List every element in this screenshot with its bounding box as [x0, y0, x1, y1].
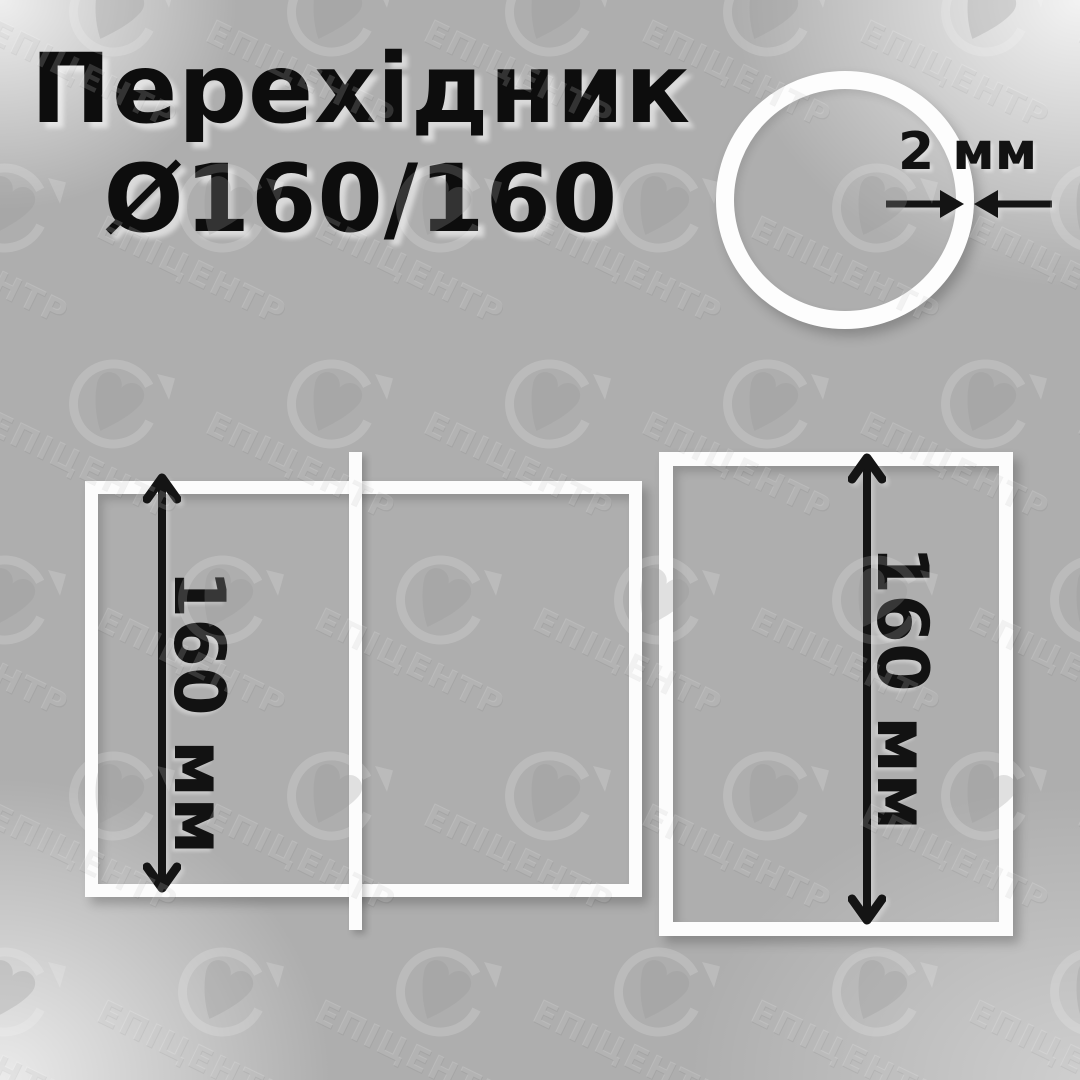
watermark-text: ЕПІЦЕНТР — [89, 991, 295, 1080]
watermark-text: ЕПІЦЕНТР — [961, 991, 1080, 1080]
watermark-text: ЕПІЦЕНТР — [1070, 795, 1080, 922]
epicentr-logo-icon — [0, 924, 73, 1059]
epicentr-logo-icon — [0, 532, 73, 667]
wall-thickness-label: 2 мм — [898, 122, 1058, 182]
epicentr-logo-icon — [45, 336, 182, 471]
product-title-line2: Ø160/160 — [0, 145, 722, 254]
vertical-dimension-arrow-icon — [143, 472, 181, 894]
arrow-right-icon — [884, 187, 966, 221]
epicentr-logo-icon — [263, 336, 400, 471]
epicentr-logo-icon — [808, 924, 945, 1059]
watermark-tile: ЕПІЦЕНТР — [0, 901, 121, 1080]
epicentr-logo-icon — [481, 336, 618, 471]
epicentr-logo-icon — [1026, 924, 1080, 1059]
watermark-tile: ЕПІЦЕНТР — [307, 901, 557, 1080]
watermark-tile: ЕПІЦЕНТР — [89, 901, 339, 1080]
watermark-tile: ЕПІЦЕНТР — [0, 313, 12, 530]
pipe-joint-line — [349, 452, 362, 930]
epicentr-logo-icon — [590, 924, 727, 1059]
watermark-text: ЕПІЦЕНТР — [1070, 403, 1080, 530]
watermark-text: ЕПІЦЕНТР — [525, 991, 731, 1080]
watermark-text: ЕПІЦЕНТР — [0, 991, 77, 1080]
epicentr-logo-icon — [372, 924, 509, 1059]
watermark-tile: ЕПІЦЕНТР — [0, 705, 12, 922]
watermark-text: ЕПІЦЕНТР — [743, 991, 949, 1080]
product-infographic: Перехідник Ø160/160 2 мм 160 мм 160 мм Е… — [0, 0, 1080, 1080]
watermark-text: ЕПІЦЕНТР — [961, 207, 1080, 334]
watermark-text: ЕПІЦЕНТР — [1070, 11, 1080, 138]
epicentr-logo-icon — [1026, 532, 1080, 667]
watermark-text: ЕПІЦЕНТР — [307, 991, 513, 1080]
epicentr-logo-icon — [154, 924, 291, 1059]
arrow-left-icon — [972, 187, 1054, 221]
watermark-tile: ЕПІЦЕНТР — [1070, 0, 1080, 138]
right-pipe-outline — [659, 452, 1013, 936]
watermark-tile: ЕПІЦЕНТР — [1070, 705, 1080, 922]
watermark-text: ЕПІЦЕНТР — [0, 599, 77, 726]
watermark-tile: ЕПІЦЕНТР — [1070, 313, 1080, 530]
product-title-line1: Перехідник — [0, 34, 722, 145]
epicentr-logo-icon — [917, 0, 1054, 80]
vertical-dimension-arrow-icon — [848, 450, 886, 928]
title-block: Перехідник Ø160/160 — [0, 34, 722, 254]
